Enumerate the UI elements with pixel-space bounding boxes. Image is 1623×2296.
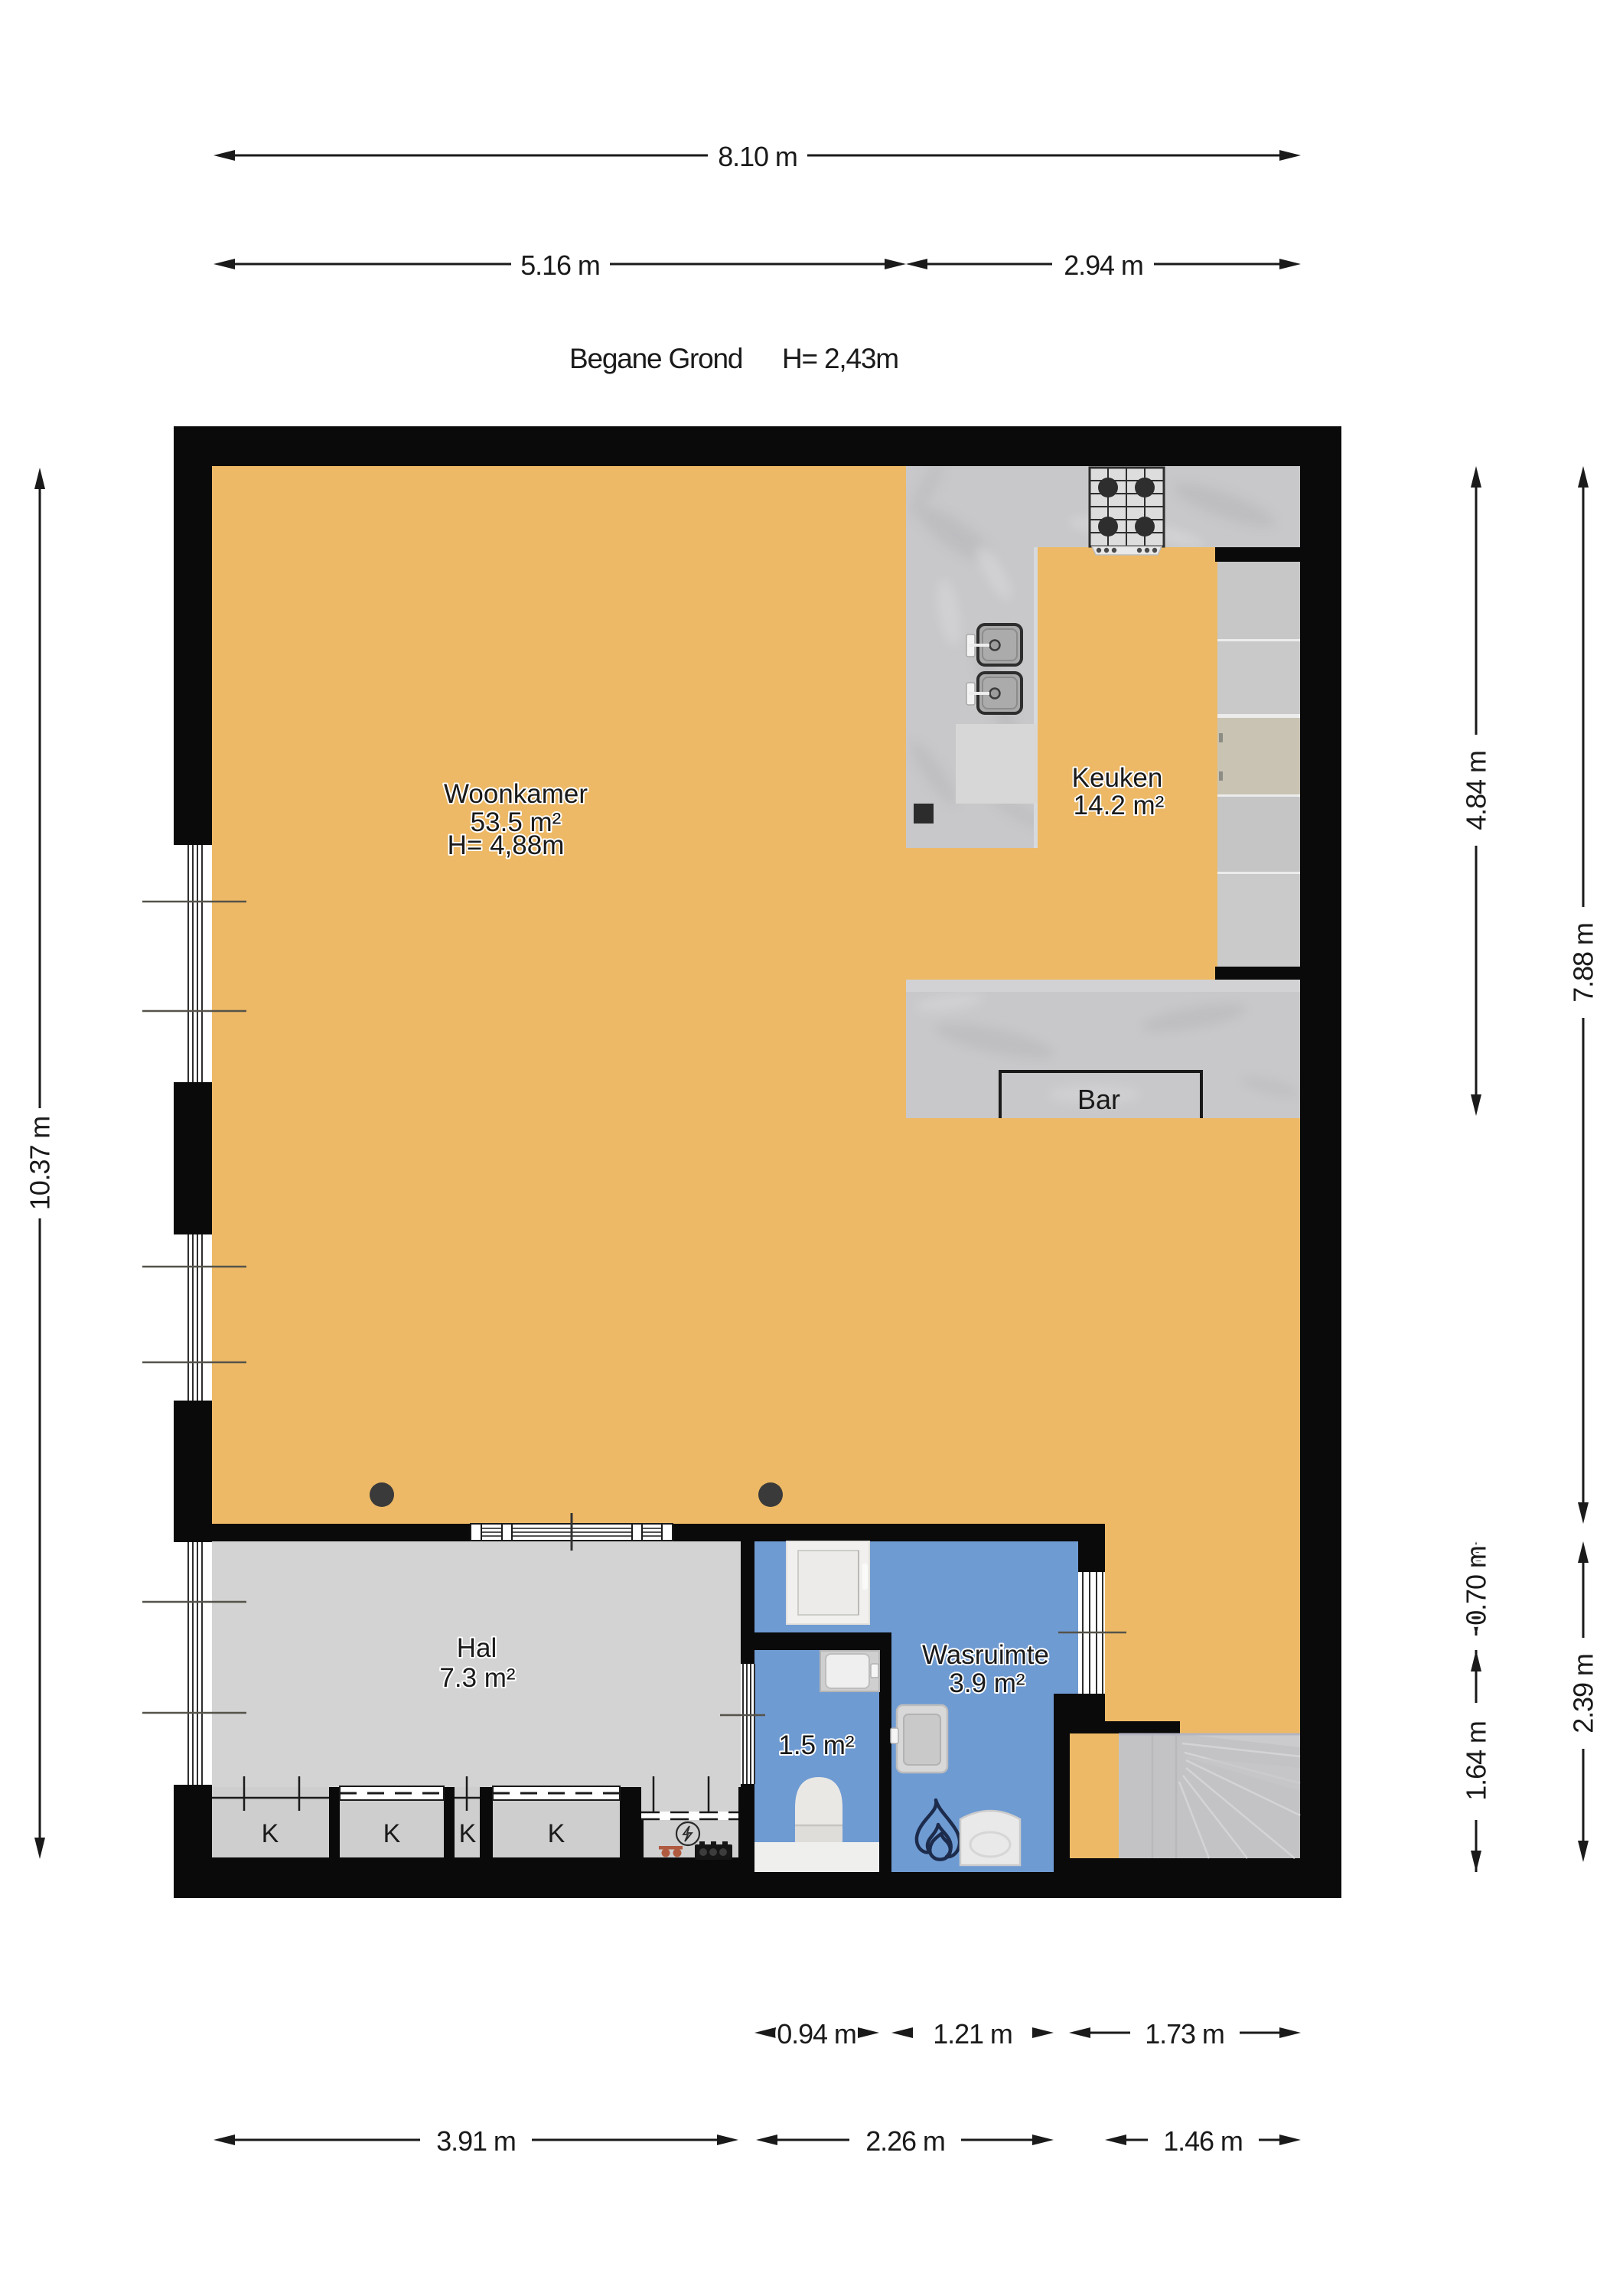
svg-text:3.91 m: 3.91 m <box>436 2125 515 2157</box>
svg-text:Keuken: Keuken <box>1072 763 1163 793</box>
svg-text:0.94 m: 0.94 m <box>777 2018 855 2050</box>
svg-text:2.94 m: 2.94 m <box>1064 249 1142 281</box>
svg-text:1.64 m: 1.64 m <box>1461 1721 1492 1800</box>
svg-text:2.39 m: 2.39 m <box>1568 1654 1599 1733</box>
svg-text:K: K <box>459 1819 477 1848</box>
svg-text:K: K <box>548 1819 565 1848</box>
svg-text:1.46 m: 1.46 m <box>1163 2125 1242 2157</box>
svg-text:2.26 m: 2.26 m <box>865 2125 944 2157</box>
svg-text:Woonkamer: Woonkamer <box>444 779 588 809</box>
svg-text:10.37 m: 10.37 m <box>24 1117 56 1210</box>
svg-text:Bar: Bar <box>1077 1084 1120 1115</box>
svg-text:1.5 m²: 1.5 m² <box>778 1730 854 1760</box>
svg-text:8.10 m: 8.10 m <box>718 141 797 172</box>
svg-text:1.21 m: 1.21 m <box>933 2018 1012 2050</box>
svg-text:7.88 m: 7.88 m <box>1568 923 1599 1002</box>
svg-text:Wasruimte: Wasruimte <box>922 1640 1049 1670</box>
svg-text:1.73 m: 1.73 m <box>1145 2018 1224 2050</box>
svg-text:Hal: Hal <box>457 1633 497 1663</box>
svg-text:Begane Grond: Begane Grond <box>569 343 742 374</box>
svg-text:H= 2,43m: H= 2,43m <box>782 343 898 374</box>
svg-text:7.3 m²: 7.3 m² <box>439 1663 515 1693</box>
svg-text:K: K <box>262 1819 279 1848</box>
svg-text:3.9 m²: 3.9 m² <box>949 1668 1025 1698</box>
svg-text:4.84 m: 4.84 m <box>1461 751 1492 830</box>
svg-text:H= 4,88m: H= 4,88m <box>448 830 565 860</box>
svg-text:5.16 m: 5.16 m <box>520 249 599 281</box>
svg-text:K: K <box>383 1819 401 1848</box>
svg-text:14.2 m²: 14.2 m² <box>1074 791 1165 820</box>
svg-text:0.70 m: 0.70 m <box>1461 1546 1492 1625</box>
